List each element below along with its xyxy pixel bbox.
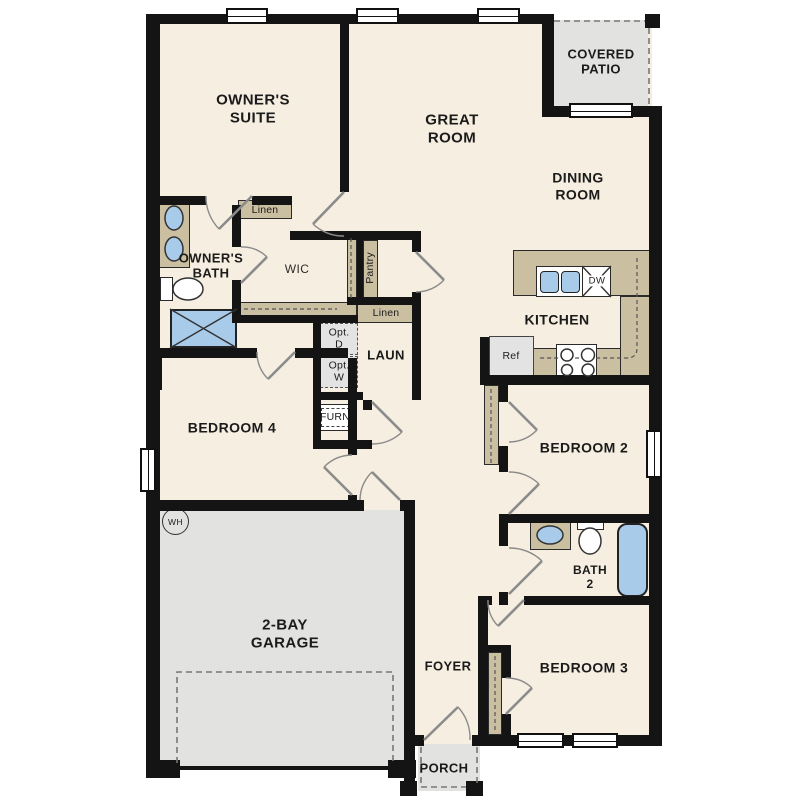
label-opt-washer: Opt. W: [329, 360, 350, 385]
wall: [347, 297, 421, 305]
wall: [400, 500, 415, 511]
wall: [499, 514, 508, 546]
wall: [412, 292, 421, 317]
bath2-vanity: [530, 521, 571, 550]
window: [517, 733, 564, 748]
wall: [363, 400, 372, 410]
wall: [160, 196, 206, 205]
wall: [313, 392, 363, 400]
wall: [404, 500, 415, 781]
room-label-great-room: GREAT ROOM: [425, 111, 478, 146]
label-water-heater: WH: [168, 516, 183, 526]
wall: [232, 315, 358, 323]
wic-shelf-bottom: [238, 302, 357, 316]
shower: [170, 309, 237, 348]
wall: [499, 385, 508, 402]
wall: [488, 645, 511, 652]
window: [646, 430, 662, 478]
sink-basin-left: [540, 271, 559, 293]
window: [477, 8, 520, 24]
wall: [313, 440, 372, 449]
window: [356, 8, 399, 24]
wall: [162, 348, 257, 358]
wall: [357, 240, 363, 298]
garage-corner-block: [146, 760, 180, 778]
wall: [412, 317, 421, 400]
exterior-mask: [480, 746, 662, 810]
room-label-owners-suite: OWNER'S SUITE: [216, 91, 290, 126]
wall: [478, 596, 492, 605]
patio-post: [645, 14, 660, 28]
room-label-bedroom-4: BEDROOM 4: [188, 420, 276, 437]
room-label-foyer: FOYER: [425, 658, 472, 673]
wall: [480, 337, 489, 377]
wall: [313, 315, 321, 448]
wall: [542, 106, 572, 117]
bedroom2-closet: [484, 385, 499, 465]
floor-plan: OWNER'S SUITE GREAT ROOM COVERED PATIO D…: [0, 0, 810, 810]
porch-post: [400, 781, 417, 796]
wall: [146, 348, 162, 390]
room-label-porch: PORCH: [420, 760, 469, 775]
bathtub: [617, 523, 648, 597]
room-label-owners-bath: OWNER'S BATH: [179, 251, 243, 282]
label-pantry: Pantry: [364, 252, 376, 284]
sink-basin-right: [561, 271, 580, 293]
bedroom3-closet: [488, 652, 502, 735]
room-label-bedroom-2: BEDROOM 2: [540, 440, 628, 457]
wall: [290, 231, 421, 240]
stove: [556, 344, 597, 378]
room-label-kitchen: KITCHEN: [524, 312, 589, 329]
window: [226, 8, 268, 24]
wall: [146, 500, 364, 511]
wall: [415, 735, 424, 746]
wall: [499, 446, 508, 472]
room-label-covered-patio: COVERED PATIO: [567, 47, 634, 78]
wall: [146, 14, 160, 778]
wall: [340, 24, 349, 192]
window: [140, 448, 156, 492]
wall: [478, 605, 488, 735]
patio-slider-door: [569, 103, 633, 118]
toilet-tank-owners: [160, 277, 173, 301]
label-refrigerator: Ref: [503, 350, 520, 362]
wall: [499, 592, 508, 605]
wall: [480, 375, 662, 385]
wall: [502, 714, 511, 735]
kitchen-counter-right: [620, 296, 650, 376]
wall: [232, 205, 241, 247]
wall: [508, 514, 662, 523]
label-dishwasher: DW: [589, 275, 606, 286]
garage-door-line: [180, 766, 388, 770]
room-label-bath-2: BATH 2: [573, 563, 607, 591]
wall: [542, 14, 554, 117]
label-linen-closet: Linen: [252, 204, 279, 216]
wall: [649, 106, 662, 436]
wall: [524, 596, 662, 605]
label-linen-hall: Linen: [373, 307, 400, 319]
label-opt-dryer: Opt. D: [329, 327, 350, 352]
wall: [502, 652, 511, 678]
label-furnace: FURN: [320, 411, 350, 423]
wall: [232, 280, 241, 315]
porch-post: [466, 781, 483, 796]
wall: [617, 735, 662, 746]
room-label-bedroom-3: BEDROOM 3: [540, 660, 628, 677]
wall: [412, 232, 421, 252]
window: [572, 733, 618, 748]
room-label-laundry: LAUN: [367, 347, 405, 362]
wall: [348, 495, 357, 511]
wall: [472, 735, 518, 746]
room-label-garage: 2-BAY GARAGE: [251, 616, 319, 651]
room-label-wic: WIC: [285, 262, 310, 276]
room-label-dining-room: DINING ROOM: [552, 169, 603, 202]
